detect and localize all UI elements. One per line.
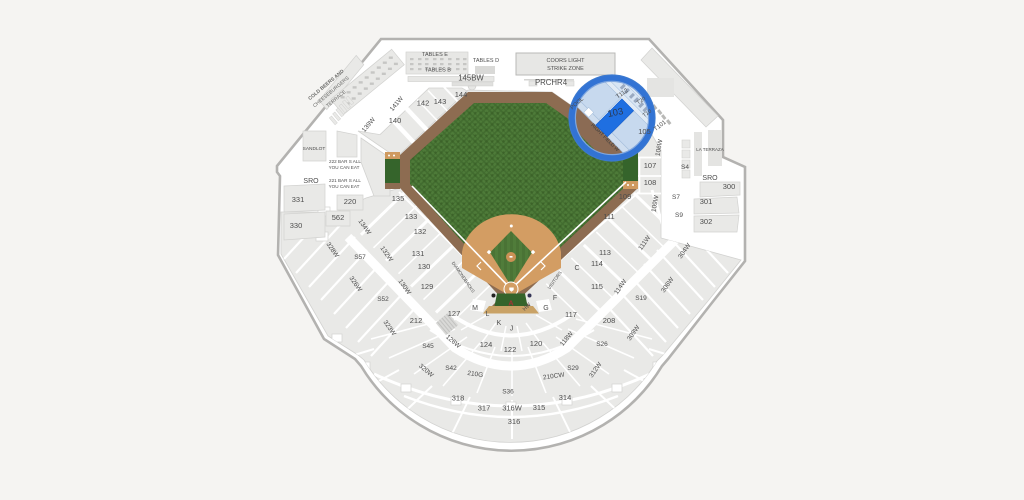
svg-text:105: 105 bbox=[638, 127, 651, 136]
svg-text:S26: S26 bbox=[596, 341, 608, 348]
svg-text:142: 142 bbox=[417, 99, 430, 108]
svg-text:L: L bbox=[486, 311, 490, 318]
svg-text:113: 113 bbox=[599, 248, 611, 257]
svg-text:318: 318 bbox=[452, 394, 465, 403]
svg-text:129: 129 bbox=[421, 282, 434, 291]
svg-text:S42: S42 bbox=[445, 365, 457, 372]
svg-text:302: 302 bbox=[700, 217, 713, 226]
svg-text:115: 115 bbox=[591, 282, 603, 291]
svg-text:108: 108 bbox=[644, 178, 657, 187]
svg-text:G: G bbox=[543, 305, 548, 312]
svg-text:YOU CAN EAT: YOU CAN EAT bbox=[329, 165, 360, 170]
svg-text:TABLES B: TABLES B bbox=[425, 68, 451, 74]
svg-text:COORS LIGHT: COORS LIGHT bbox=[547, 58, 586, 64]
svg-text:SANDLOT: SANDLOT bbox=[303, 146, 326, 152]
svg-text:140: 140 bbox=[389, 116, 402, 125]
svg-text:PRCHR4: PRCHR4 bbox=[535, 78, 568, 87]
svg-text:S29: S29 bbox=[567, 365, 579, 372]
svg-text:S4: S4 bbox=[681, 164, 689, 171]
svg-text:124: 124 bbox=[480, 340, 493, 349]
svg-text:107: 107 bbox=[644, 161, 657, 170]
svg-text:J: J bbox=[510, 326, 514, 333]
svg-text:YOU CAN EAT: YOU CAN EAT bbox=[329, 184, 360, 189]
svg-text:135: 135 bbox=[392, 194, 405, 203]
svg-text:133: 133 bbox=[405, 212, 418, 221]
svg-text:562: 562 bbox=[332, 213, 345, 222]
svg-text:S7: S7 bbox=[672, 194, 680, 201]
svg-text:145BW: 145BW bbox=[458, 74, 484, 83]
svg-text:114: 114 bbox=[591, 259, 603, 268]
svg-text:111: 111 bbox=[603, 212, 614, 221]
svg-text:S57: S57 bbox=[354, 254, 366, 261]
svg-text:144: 144 bbox=[455, 90, 468, 99]
svg-text:SRO: SRO bbox=[303, 178, 319, 185]
svg-text:122: 122 bbox=[504, 345, 517, 354]
svg-text:221 BAR S ALL: 221 BAR S ALL bbox=[329, 178, 361, 183]
svg-text:109: 109 bbox=[619, 192, 632, 201]
svg-text:TABLES D: TABLES D bbox=[473, 58, 499, 64]
svg-text:331: 331 bbox=[292, 195, 305, 204]
svg-text:F: F bbox=[553, 295, 557, 302]
svg-text:222 BAR S ALL: 222 BAR S ALL bbox=[329, 159, 361, 164]
svg-text:M: M bbox=[472, 305, 478, 312]
svg-text:S52: S52 bbox=[377, 296, 389, 303]
svg-text:K: K bbox=[497, 320, 502, 327]
svg-text:143: 143 bbox=[434, 97, 447, 106]
svg-text:SRO: SRO bbox=[702, 175, 718, 182]
svg-text:208: 208 bbox=[603, 316, 616, 325]
svg-text:330: 330 bbox=[290, 221, 303, 230]
svg-text:117: 117 bbox=[565, 310, 577, 319]
svg-text:315: 315 bbox=[533, 403, 546, 412]
svg-text:S36: S36 bbox=[502, 389, 514, 396]
svg-text:A: A bbox=[508, 299, 514, 308]
svg-text:S19: S19 bbox=[635, 295, 647, 302]
svg-text:220: 220 bbox=[344, 197, 357, 206]
svg-text:TABLES E: TABLES E bbox=[422, 52, 448, 58]
svg-text:316W: 316W bbox=[502, 404, 523, 413]
svg-text:301: 301 bbox=[700, 197, 713, 206]
svg-text:127: 127 bbox=[448, 309, 461, 318]
svg-text:130: 130 bbox=[418, 262, 431, 271]
svg-text:LA TERRAZA: LA TERRAZA bbox=[696, 147, 723, 152]
svg-text:316: 316 bbox=[508, 417, 521, 426]
svg-text:C: C bbox=[574, 265, 579, 272]
svg-text:131: 131 bbox=[412, 249, 425, 258]
svg-text:212: 212 bbox=[410, 316, 423, 325]
svg-text:S9: S9 bbox=[675, 212, 683, 219]
svg-text:300: 300 bbox=[723, 182, 736, 191]
svg-text:120: 120 bbox=[530, 339, 543, 348]
svg-text:317: 317 bbox=[478, 404, 491, 413]
svg-text:S45: S45 bbox=[422, 343, 434, 350]
svg-text:314: 314 bbox=[559, 393, 572, 402]
svg-text:132: 132 bbox=[414, 227, 427, 236]
svg-text:STRIKE ZONE: STRIKE ZONE bbox=[547, 66, 584, 72]
